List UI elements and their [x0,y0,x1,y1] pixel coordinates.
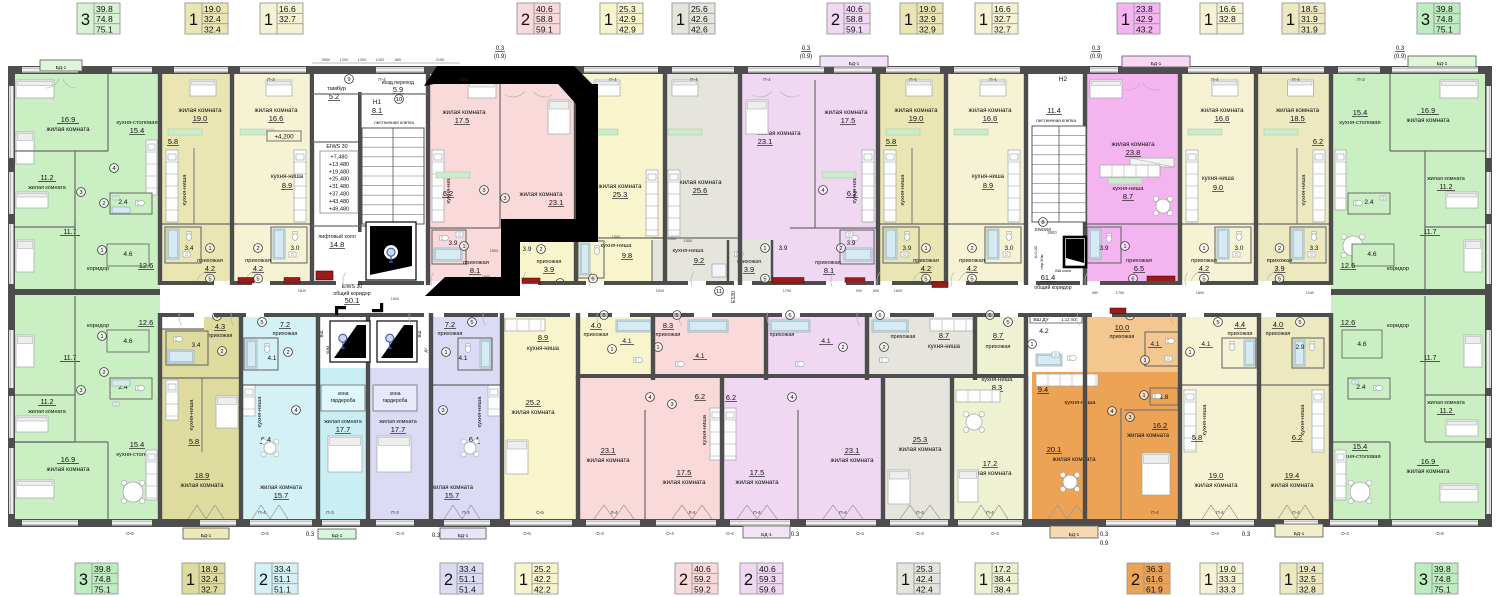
svg-text:25.2: 25.2 [526,398,540,407]
svg-text:1: 1 [208,246,211,252]
svg-text:2: 2 [259,571,268,589]
svg-text:прихожая: прихожая [986,344,1011,350]
svg-text:П-4: П-4 [916,510,924,515]
svg-text:П-4: П-4 [1216,510,1224,515]
svg-text:3.9: 3.9 [847,240,856,247]
svg-text:3: 3 [1128,415,1131,421]
svg-text:1: 1 [264,11,273,29]
svg-text:32.5: 32.5 [1299,574,1316,584]
svg-text:1: 1 [1286,11,1295,29]
svg-text:9.0: 9.0 [1213,183,1223,192]
svg-text:0.3: 0.3 [306,532,315,538]
svg-text:3: 3 [482,188,485,194]
svg-text:БД-1: БД-1 [201,533,212,539]
svg-text:1500: 1500 [391,297,399,301]
svg-text:1500: 1500 [668,237,676,241]
svg-text:23.1: 23.1 [845,446,859,455]
svg-text:18.9: 18.9 [201,564,218,574]
svg-text:1: 1 [100,334,103,340]
svg-text:6: 6 [788,313,791,319]
svg-text:42.4: 42.4 [916,585,933,595]
svg-text:П-3: П-3 [391,510,399,515]
svg-text:лестничная клетка: лестничная клетка [374,120,414,125]
svg-text:15.7: 15.7 [445,491,459,500]
svg-text:74.8: 74.8 [96,14,113,24]
svg-text:жилая комната: жилая комната [1052,456,1096,463]
svg-text:58.8: 58.8 [846,14,863,24]
svg-text:П-4: П-4 [258,510,266,515]
svg-text:61.9: 61.9 [1146,585,1163,595]
svg-text:8.9: 8.9 [538,333,548,342]
svg-text:коридор: коридор [1387,323,1409,329]
svg-text:3: 3 [79,388,82,394]
svg-text:6.2: 6.2 [695,392,705,401]
svg-text:2: 2 [839,246,842,252]
svg-text:850: 850 [395,58,401,62]
svg-text:кухня-ниша: кухня-ниша [928,344,961,350]
svg-text:0.3: 0.3 [1242,532,1251,538]
svg-text:51.4: 51.4 [459,585,476,595]
svg-text:кухня-ниша: кухня-ниша [477,396,483,428]
svg-text:1500: 1500 [656,289,664,293]
svg-text:2.9: 2.9 [1296,344,1305,351]
svg-text:850: 850 [873,289,879,293]
svg-text:16.6: 16.6 [269,114,283,123]
svg-text:1: 1 [186,571,195,589]
svg-text:П-4: П-4 [753,510,761,515]
svg-text:кухня-ниша: кухня-ниша [527,346,560,352]
svg-text:42.4: 42.4 [916,574,933,584]
svg-text:3.9: 3.9 [523,246,532,253]
svg-text:1: 1 [1204,11,1213,29]
svg-text:33.4: 33.4 [274,564,291,574]
svg-text:5: 5 [1202,277,1205,283]
svg-text:3.9: 3.9 [1100,245,1109,252]
svg-text:8.7: 8.7 [993,331,1003,340]
svg-text:4.2: 4.2 [1039,328,1049,335]
svg-text:1: 1 [444,350,447,356]
svg-text:пер.50м: пер.50м [1039,254,1044,269]
svg-text:зона: зона [390,391,401,397]
svg-text:кухня-ниша: кухня-ниша [702,414,708,445]
svg-text:5.8: 5.8 [168,137,178,146]
svg-text:EIWS 30: EIWS 30 [326,144,347,150]
svg-text:15.7: 15.7 [274,491,288,500]
svg-text:42.9: 42.9 [1136,14,1153,24]
svg-text:16.6: 16.6 [279,4,296,14]
svg-text:П-3: П-3 [1357,77,1365,82]
svg-text:15.4: 15.4 [130,126,144,135]
svg-text:980: 980 [1092,291,1098,295]
svg-text:2: 2 [744,571,753,589]
svg-text:42.9: 42.9 [619,14,636,24]
svg-text:5: 5 [1216,320,1219,326]
svg-text:12.6: 12.6 [139,318,153,327]
svg-text:19.0: 19.0 [204,4,221,14]
svg-text:16.9: 16.9 [61,455,75,464]
svg-text:жилая комната: жилая комната [1200,107,1244,114]
svg-text:О-4: О-4 [726,531,734,536]
svg-text:О-4: О-4 [916,531,924,536]
svg-text:П-3: П-3 [326,510,334,515]
svg-text:Л-4: Л-4 [688,510,696,515]
svg-text:жилая комната: жилая комната [1406,117,1450,124]
svg-text:1: 1 [1123,244,1126,250]
svg-text:кухня-ниша: кухня-ниша [182,174,188,206]
svg-text:жилая комната: жилая комната [1427,176,1465,182]
svg-text:3.4: 3.4 [192,342,201,349]
svg-text:1: 1 [763,246,766,252]
svg-text:31.9: 31.9 [1301,25,1318,35]
svg-text:59.2: 59.2 [694,585,711,595]
svg-text:16.9: 16.9 [1421,106,1435,115]
svg-text:40.6: 40.6 [536,4,553,14]
svg-text:2: 2 [970,246,973,252]
svg-text:О-4: О-4 [1211,531,1219,536]
svg-text:1500: 1500 [612,235,620,239]
svg-text:2: 2 [220,349,223,355]
svg-text:11: 11 [716,289,722,295]
svg-text:16.2: 16.2 [1153,421,1167,430]
svg-text:1: 1 [1143,358,1146,364]
svg-text:42.2: 42.2 [534,574,551,584]
svg-text:6.2: 6.2 [1313,137,1323,146]
svg-text:коридор: коридор [87,266,109,272]
svg-text:59.3: 59.3 [759,574,776,584]
svg-text:1: 1 [610,347,613,353]
svg-text:лестничная клетка: лестничная клетка [1036,118,1076,123]
svg-text:19.4: 19.4 [1285,471,1299,480]
svg-text:жилая комната: жилая комната [46,466,90,473]
svg-text:1200: 1200 [340,58,348,62]
svg-text:7.2: 7.2 [445,320,455,329]
svg-text:2: 2 [521,11,530,29]
svg-text:О-4: О-4 [596,531,604,536]
svg-text:h=0,02: h=0,02 [1033,245,1038,258]
svg-text:17.5: 17.5 [455,116,469,125]
svg-text:+19,480: +19,480 [329,169,349,175]
svg-text:жилая комната: жилая комната [442,109,486,116]
svg-text:8.9: 8.9 [282,181,292,190]
svg-text:3.3: 3.3 [1310,245,1319,252]
svg-text:БД-1: БД-1 [1437,61,1448,67]
svg-text:4.1: 4.1 [459,355,468,362]
svg-text:БД-1: БД-1 [458,533,469,539]
svg-text:П-4: П-4 [690,77,698,82]
svg-text:жилая комната: жилая комната [894,107,938,114]
svg-text:3.0: 3.0 [291,245,300,252]
svg-text:59.2: 59.2 [694,574,711,584]
svg-text:25.6: 25.6 [693,186,707,195]
svg-text:жилая комната: жилая комната [968,107,1012,114]
svg-text:16.6: 16.6 [983,114,997,123]
svg-text:32.4: 32.4 [204,14,221,24]
svg-text:коридор: коридор [1387,266,1409,272]
svg-text:жилая комната: жилая комната [28,185,66,191]
svg-text:50.1: 50.1 [345,296,359,305]
svg-text:32.8: 32.8 [1299,585,1316,595]
svg-text:6: 6 [988,313,991,319]
svg-text:23.1: 23.1 [601,446,615,455]
svg-text:+25,480: +25,480 [329,177,349,183]
svg-text:1200: 1200 [376,58,384,62]
svg-text:3.9: 3.9 [744,265,754,274]
svg-text:жилая комната: жилая комната [678,179,722,186]
svg-text:+13,480: +13,480 [329,162,349,168]
svg-text:16.9: 16.9 [61,115,75,124]
svg-text:75.1: 75.1 [94,585,111,595]
svg-text:15.4: 15.4 [130,440,144,449]
svg-text:6.5: 6.5 [1134,264,1144,273]
svg-text:1: 1 [979,571,988,589]
svg-text:О-5: О-5 [261,531,269,536]
svg-text:18.5: 18.5 [1301,4,1318,14]
svg-text:жилая комната: жилая комната [46,126,90,133]
svg-text:6.2: 6.2 [726,393,736,402]
svg-text:40.6: 40.6 [759,564,776,574]
svg-text:2: 2 [102,201,105,207]
svg-text:3: 3 [1421,11,1430,29]
svg-text:58.8: 58.8 [536,14,553,24]
svg-text:5: 5 [470,320,473,326]
svg-text:38.4: 38.4 [994,574,1011,584]
svg-text:38.4: 38.4 [994,585,1011,595]
svg-text:1: 1 [100,248,103,254]
svg-text:жилая комната: жилая комната [254,107,298,114]
svg-text:кухня-ниша: кухня-ниша [1301,174,1307,206]
svg-text:прихожая: прихожая [770,332,795,338]
svg-text:общий коридор: общий коридор [1034,284,1071,291]
svg-text:0.3: 0.3 [802,46,811,52]
svg-text:23.8: 23.8 [1126,148,1140,157]
svg-text:19.0: 19.0 [1209,471,1223,480]
svg-text:17.7: 17.7 [391,425,405,434]
svg-text:6.2: 6.2 [443,189,453,198]
svg-text:жилая комната: жилая комната [586,457,630,464]
svg-text:19.0: 19.0 [909,114,923,123]
svg-text:БД-1: БД-1 [332,533,343,539]
svg-text:прихожая: прихожая [891,334,916,340]
svg-text:1: 1 [979,11,988,29]
svg-text:25.3: 25.3 [913,435,927,444]
svg-text:5: 5 [1298,320,1301,326]
svg-text:1: 1 [656,345,659,351]
svg-text:(0.9): (0.9) [494,54,506,60]
svg-text:5.8: 5.8 [189,437,199,446]
svg-text:12.6: 12.6 [1341,318,1355,327]
svg-text:жилая комната: жилая комната [178,107,222,114]
svg-text:4.1: 4.1 [1201,341,1210,348]
svg-text:3: 3 [79,571,88,589]
svg-text:2: 2 [679,571,688,589]
svg-text:4.1: 4.1 [1151,341,1160,348]
svg-text:0.3: 0.3 [1100,532,1109,538]
svg-text:5: 5 [924,277,927,283]
svg-text:75.1: 75.1 [1436,25,1453,35]
svg-text:П-4: П-4 [1292,510,1300,515]
svg-text:16.6: 16.6 [1219,4,1236,14]
svg-text:КОМ: КОМ [326,346,330,354]
svg-text:61.6: 61.6 [1146,574,1163,584]
svg-text:жилая комната: жилая комната [511,409,555,416]
svg-text:3.0: 3.0 [1235,245,1244,252]
svg-text:17.5: 17.5 [841,116,855,125]
svg-text:жилая комната: жилая комната [1127,433,1169,439]
svg-text:О-5: О-5 [536,510,544,515]
svg-text:3050: 3050 [322,58,330,62]
svg-text:жилая комната: жилая комната [824,109,868,116]
svg-text:14.8: 14.8 [330,240,344,249]
svg-text:8.1: 8.1 [372,106,382,115]
svg-text:59.1: 59.1 [846,25,863,35]
svg-text:1: 1 [604,11,613,29]
svg-text:БД-1: БД-1 [56,65,67,71]
svg-text:23.1: 23.1 [549,198,563,207]
svg-text:12.6: 12.6 [1341,261,1355,270]
svg-text:П-4: П-4 [763,77,771,82]
svg-text:6: 6 [878,313,881,319]
svg-text:74.8: 74.8 [1436,14,1453,24]
svg-text:3.0: 3.0 [1005,245,1014,252]
svg-text:8.7: 8.7 [1123,192,1133,201]
svg-text:1500: 1500 [490,249,498,253]
svg-text:+37,480: +37,480 [329,192,349,198]
svg-text:32.8: 32.8 [1219,14,1236,24]
svg-text:E130: E130 [731,291,737,303]
svg-text:ДУ: ДУ [424,347,428,352]
svg-text:74.8: 74.8 [94,574,111,584]
svg-text:Л-4: Л-4 [610,510,618,515]
svg-text:кухня-столовая: кухня-столовая [1339,120,1380,126]
svg-text:2: 2 [1278,246,1281,252]
svg-text:(0.9): (0.9) [800,54,812,60]
svg-text:+4,200: +4,200 [274,134,294,141]
svg-text:25.3: 25.3 [619,4,636,14]
svg-text:36.3: 36.3 [1146,564,1163,574]
svg-text:2: 2 [444,571,453,589]
svg-text:лифтовый холл: лифтовый холл [318,233,355,240]
svg-text:П-4: П-4 [1151,510,1159,515]
svg-text:4.0: 4.0 [1273,320,1283,329]
svg-text:1300: 1300 [358,58,366,62]
svg-text:17.2: 17.2 [983,459,997,468]
svg-text:2.4: 2.4 [118,199,127,206]
svg-text:кухня-ниша: кухня-ниша [189,399,195,431]
svg-text:17.2: 17.2 [994,564,1011,574]
svg-text:5: 5 [260,320,263,326]
svg-text:кухня-ниша: кухня-ниша [601,243,633,249]
svg-text:кухня-ниша: кухня-ниша [271,174,304,180]
svg-text:5.8: 5.8 [1192,433,1202,442]
svg-text:П-3: П-3 [267,77,275,82]
svg-text:кухня-ниша: кухня-ниша [1300,404,1306,436]
svg-text:жилая комната: жилая комната [28,409,66,415]
svg-text:8.9: 8.9 [983,181,993,190]
svg-text:1.12 m2: 1.12 m2 [1061,317,1077,322]
svg-text:23.8: 23.8 [1136,4,1153,14]
svg-text:1750: 1750 [783,289,791,293]
svg-text:прихожая: прихожая [438,331,463,337]
svg-text:40.6: 40.6 [694,564,711,574]
svg-text:жилая комната: жилая комната [180,482,224,489]
svg-text:59.6: 59.6 [759,585,776,595]
svg-text:жилая комната: жилая комната [1276,107,1320,114]
svg-text:1: 1 [901,571,910,589]
svg-text:О-4: О-4 [991,531,999,536]
svg-text:990: 990 [856,289,862,293]
svg-text:4.1: 4.1 [695,353,704,360]
svg-text:2: 2 [831,11,840,29]
svg-text:кухня-ниша: кухня-ниша [1202,404,1208,436]
svg-text:ВШ комн: ВШ комн [1055,269,1071,273]
svg-text:+49,480: +49,480 [329,206,349,212]
svg-text:жилая комната: жилая комната [735,479,779,486]
svg-text:EIWS60: EIWS60 [1035,227,1052,232]
svg-text:жилая комната: жилая комната [830,457,874,464]
svg-text:П-4: П-4 [909,77,917,82]
svg-text:П-3: П-3 [462,510,470,515]
svg-text:кухня-ниша: кухня-ниша [1202,176,1235,182]
svg-text:1: 1 [904,11,913,29]
svg-text:кухня-ниша: кухня-ниша [900,174,906,206]
svg-text:32.4: 32.4 [201,574,218,584]
svg-text:17.5: 17.5 [750,468,764,477]
svg-text:кухня-ниша: кухня-ниша [1065,400,1097,406]
svg-text:4.6: 4.6 [1367,251,1376,258]
svg-text:3: 3 [670,402,673,408]
svg-text:3: 3 [81,11,90,29]
svg-text:1800: 1800 [894,289,902,293]
svg-text:15.4: 15.4 [1353,108,1367,117]
svg-text:1: 1 [1030,342,1033,348]
svg-text:43.2: 43.2 [1136,25,1153,35]
svg-text:59.1: 59.1 [536,25,553,35]
svg-text:1: 1 [1142,393,1145,399]
svg-text:17.5: 17.5 [677,468,691,477]
svg-text:16.6: 16.6 [994,4,1011,14]
svg-text:32.7: 32.7 [994,14,1011,24]
svg-text:О-4: О-4 [666,531,674,536]
svg-text:5: 5 [763,277,766,283]
svg-text:жилая комната: жилая комната [1406,468,1450,475]
svg-text:1: 1 [1284,571,1293,589]
svg-text:О-4: О-4 [856,531,864,536]
svg-text:23.1: 23.1 [758,137,772,146]
svg-text:жилая комната: жилая комната [662,479,706,486]
svg-text:прихожая: прихожая [273,331,298,337]
svg-text:42.6: 42.6 [691,25,708,35]
svg-text:5: 5 [1006,320,1009,326]
svg-text:1: 1 [676,11,685,29]
svg-text:40.6: 40.6 [846,4,863,14]
svg-text:11.4: 11.4 [1047,106,1061,115]
svg-text:2: 2 [1131,571,1140,589]
svg-text:П-4: П-4 [839,510,847,515]
svg-text:О-3: О-3 [396,531,404,536]
svg-text:9.2: 9.2 [694,256,704,265]
svg-text:8.3: 8.3 [663,321,673,330]
svg-text:5: 5 [970,277,973,283]
svg-text:19.0: 19.0 [1219,564,1236,574]
svg-text:42.2: 42.2 [534,585,551,595]
svg-text:зона: зона [338,391,349,397]
svg-text:2150: 2150 [436,58,444,62]
svg-text:25.3: 25.3 [613,190,627,199]
svg-text:8.7: 8.7 [939,331,949,340]
svg-text:5.9: 5.9 [393,85,403,94]
svg-text:H1: H1 [373,99,382,106]
svg-text:прихожая: прихожая [1110,334,1135,340]
